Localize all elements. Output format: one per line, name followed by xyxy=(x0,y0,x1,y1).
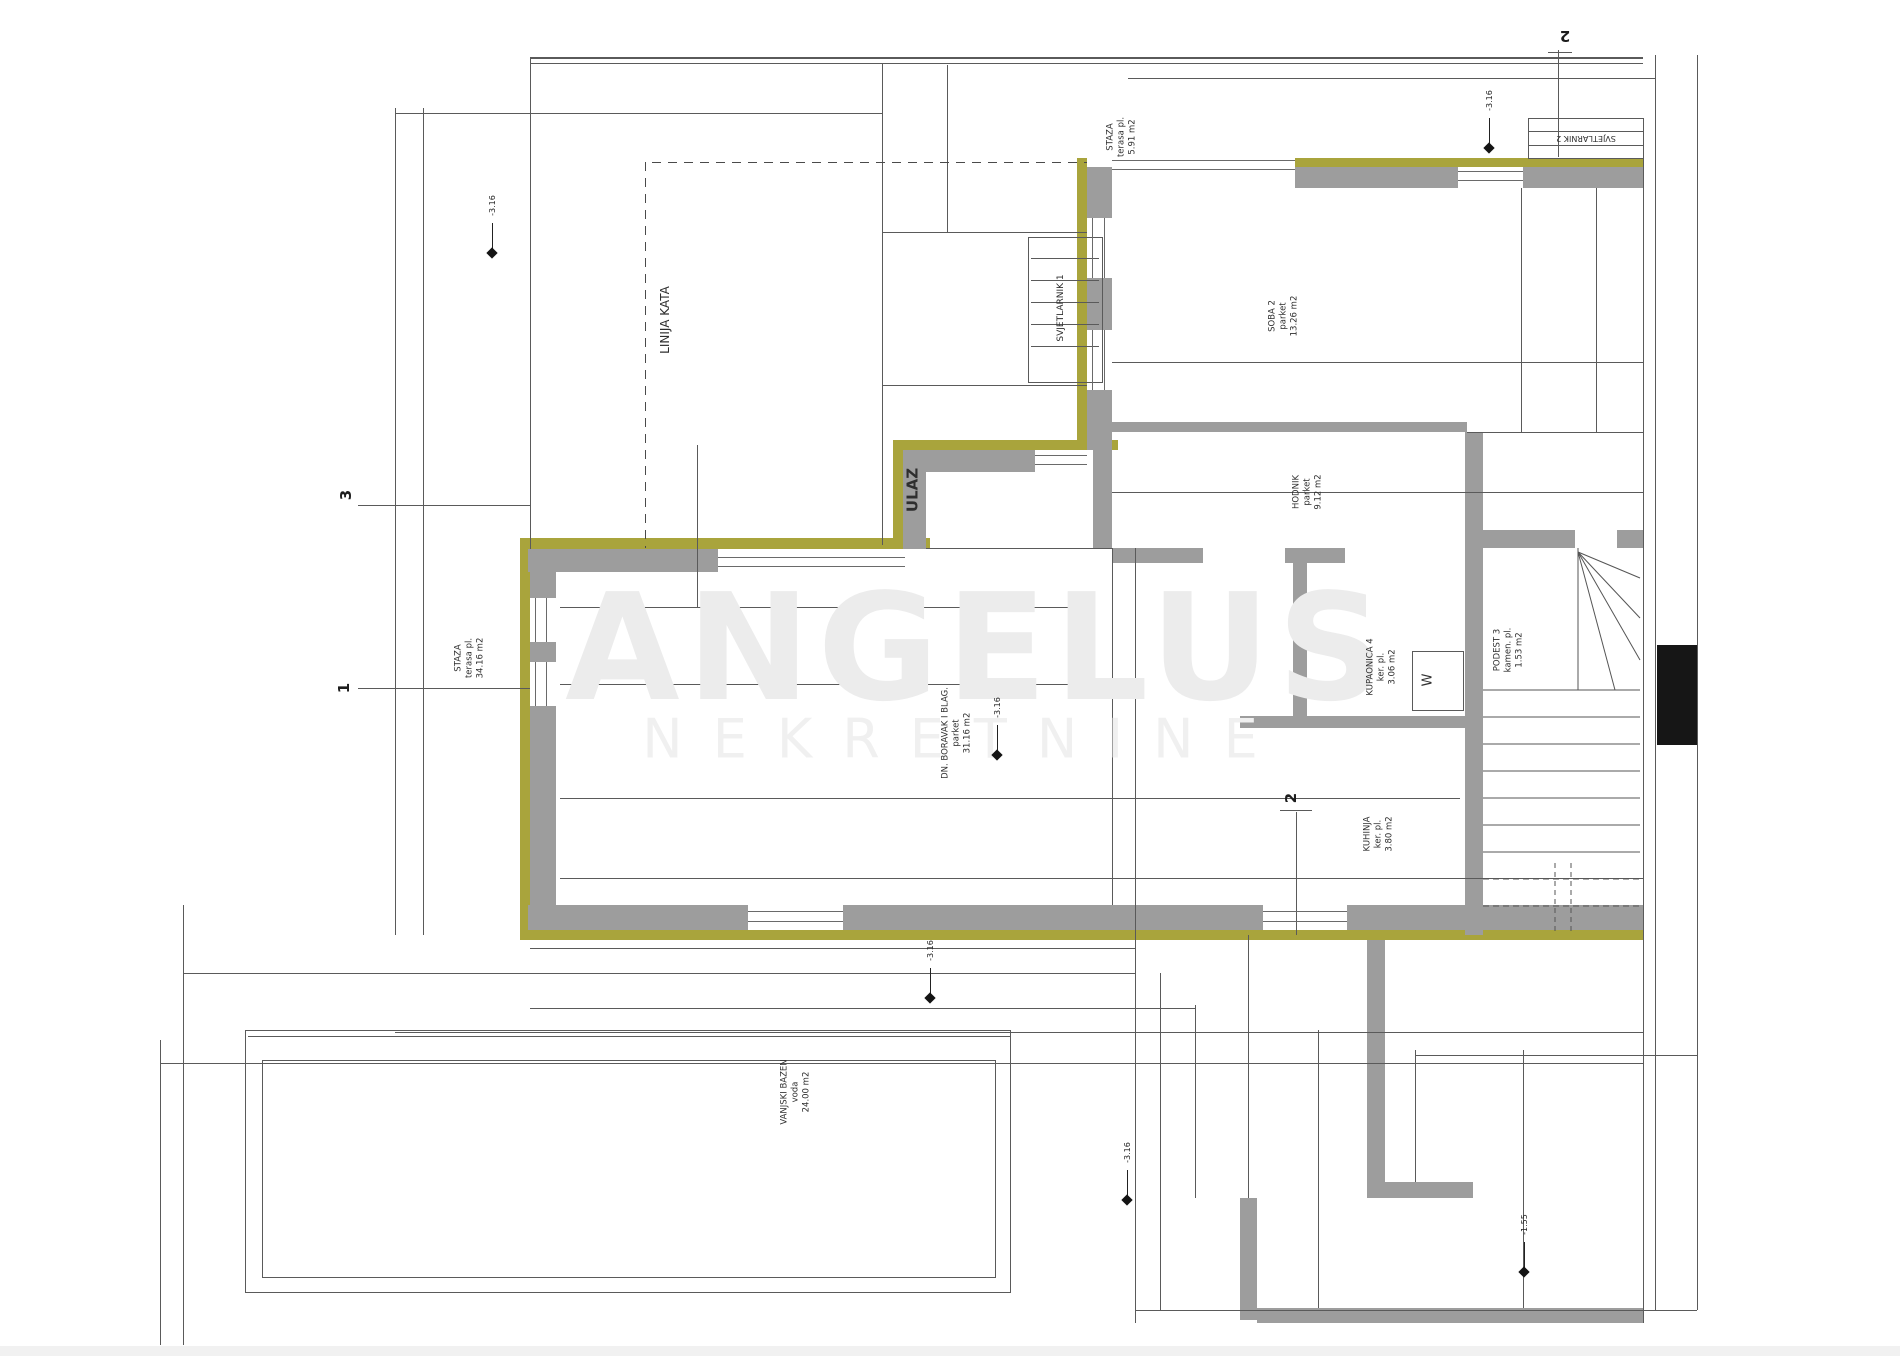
room-name: HODNIK xyxy=(1291,474,1302,509)
elevation-value: -3.16 xyxy=(1123,1142,1132,1163)
line xyxy=(1112,362,1643,363)
floor-outline-dashed xyxy=(652,162,1087,163)
elevation-value: -1.55 xyxy=(1520,1214,1529,1235)
room-finish: ker. pl. xyxy=(1373,816,1384,851)
line xyxy=(1643,157,1644,1323)
line xyxy=(947,65,948,232)
page-edge-strip xyxy=(0,1346,1900,1356)
wall-segment xyxy=(1523,167,1643,188)
line xyxy=(1528,145,1643,146)
line xyxy=(1028,237,1029,383)
line xyxy=(1128,78,1655,79)
line xyxy=(560,878,1643,879)
line xyxy=(1318,1030,1319,1308)
elevation-value: -3.16 xyxy=(1485,90,1494,111)
marker-diamond-icon xyxy=(1483,142,1494,153)
room-finish: parket xyxy=(1302,474,1313,509)
room-name: SVJETLARNIK 1 xyxy=(1056,274,1068,341)
section-number: 2 xyxy=(1282,793,1300,803)
room-label: HODNIK parket 9.12 m2 xyxy=(1291,474,1324,509)
line xyxy=(882,63,883,545)
room-area: 24.00 m2 xyxy=(802,1059,813,1124)
room-finish: parket xyxy=(1278,296,1289,337)
line xyxy=(1031,346,1099,347)
window-line xyxy=(1092,218,1093,278)
washer-label: W xyxy=(1421,674,1436,687)
window-line xyxy=(1104,330,1105,390)
window-line xyxy=(748,911,843,912)
line xyxy=(530,948,1135,949)
line xyxy=(423,108,424,935)
line xyxy=(358,688,530,689)
line xyxy=(245,1292,1011,1293)
wall-segment xyxy=(1295,167,1458,188)
line xyxy=(1195,1005,1196,1198)
room-area: 1.53 m2 xyxy=(1515,628,1526,673)
line xyxy=(560,798,1460,799)
marker-diamond-icon xyxy=(486,247,497,258)
section-number: 1 xyxy=(335,683,353,693)
room-label: SVJETLARNIK 2 xyxy=(1556,133,1616,143)
window-line xyxy=(748,921,843,922)
room-label: LINIJA KATA xyxy=(658,286,674,354)
line xyxy=(530,1008,1195,1009)
line xyxy=(183,905,184,1345)
line xyxy=(1528,118,1643,119)
room-name: LINIJA KATA xyxy=(658,286,674,354)
room-label: KUHINJA ker. pl. 3.80 m2 xyxy=(1362,816,1395,851)
insulation-strip xyxy=(1295,158,1643,167)
line xyxy=(1412,651,1413,711)
room-area: 3.06 m2 xyxy=(1388,638,1399,695)
room-name: DN. BORAVAK I BLAG. xyxy=(940,687,951,779)
room-name: VANJSKI BAZEN xyxy=(779,1059,790,1124)
room-finish: terasa pl. xyxy=(464,638,475,679)
room-label: VANJSKI BAZEN voda 24.00 m2 xyxy=(779,1059,812,1124)
window-line xyxy=(546,662,547,706)
room-name: ULAZ xyxy=(903,468,923,512)
line xyxy=(1296,812,1297,935)
window-line xyxy=(1035,455,1087,456)
wall-segment xyxy=(1093,450,1112,548)
window-line xyxy=(1458,180,1523,181)
line xyxy=(1643,118,1644,159)
wall-segment xyxy=(843,905,1263,930)
room-finish: terasa pl. xyxy=(1116,117,1127,157)
window-line xyxy=(1263,921,1347,922)
line xyxy=(1280,810,1312,811)
line xyxy=(1112,492,1643,493)
window-line xyxy=(1104,218,1105,278)
room-area: 31.16 m2 xyxy=(963,687,974,779)
line xyxy=(358,505,530,506)
line xyxy=(395,1032,1643,1033)
line xyxy=(1135,1310,1697,1311)
line xyxy=(1463,651,1464,711)
line xyxy=(530,57,1643,59)
line xyxy=(1655,55,1656,1310)
line xyxy=(1028,382,1102,383)
window-line xyxy=(1458,171,1523,172)
section-marker: 2 xyxy=(1560,27,1570,45)
window-line xyxy=(718,557,905,558)
line xyxy=(1010,1030,1011,1293)
wall-segment xyxy=(1465,432,1483,935)
room-finish: kamen. pl. xyxy=(1503,628,1514,673)
line xyxy=(183,973,1135,974)
wall-segment xyxy=(528,905,748,930)
elevation-value: -3.16 xyxy=(926,940,935,961)
line xyxy=(262,1060,263,1278)
insulation-strip xyxy=(520,538,930,549)
window-line xyxy=(1035,464,1087,465)
line xyxy=(1031,258,1099,259)
line xyxy=(926,548,1112,549)
line xyxy=(1548,52,1572,53)
window-line xyxy=(535,598,536,642)
line xyxy=(248,1036,1010,1037)
wall-segment xyxy=(1087,278,1112,330)
wall-segment xyxy=(1367,940,1385,1198)
line xyxy=(1028,237,1102,238)
line xyxy=(1415,1055,1697,1056)
section-marker: 3 xyxy=(337,490,355,500)
wall-segment xyxy=(1112,422,1467,432)
line xyxy=(1135,935,1136,1323)
line xyxy=(1521,188,1522,432)
line xyxy=(1102,237,1103,383)
wall-segment xyxy=(1617,530,1643,548)
elevation-value: -3.16 xyxy=(488,195,497,216)
room-name: KUPAONICA 4 xyxy=(1365,638,1376,695)
staircase xyxy=(1483,548,1643,935)
room-area: 3.80 m2 xyxy=(1385,816,1396,851)
room-name: STAZA xyxy=(453,638,464,679)
line xyxy=(1248,935,1249,1198)
wall-segment xyxy=(1483,530,1575,548)
elevation-value: -3.16 xyxy=(993,697,1002,718)
line xyxy=(882,232,1087,233)
line xyxy=(262,1277,996,1278)
section-marker: 2 xyxy=(1282,793,1300,803)
marker-diamond-icon xyxy=(1121,1194,1132,1205)
line xyxy=(1697,55,1698,1310)
room-area: 5.91 m2 xyxy=(1128,117,1139,157)
line xyxy=(1596,188,1597,432)
room-area: 34.16 m2 xyxy=(476,638,487,679)
window-line xyxy=(1112,169,1295,170)
wall-segment xyxy=(1385,1182,1473,1198)
wall-segment xyxy=(1240,1198,1257,1320)
line xyxy=(395,108,396,935)
room-name: SOBA 2 xyxy=(1267,296,1278,337)
line xyxy=(530,59,531,549)
line xyxy=(245,1030,246,1293)
line xyxy=(1412,710,1463,711)
room-finish: ker. pl. xyxy=(1376,638,1387,695)
shaft-fill xyxy=(1657,645,1697,745)
floor-plan: ANGELUS NEKRETNINE W LINIJA KA xyxy=(0,0,1900,1356)
room-label: ULAZ xyxy=(903,468,923,512)
room-label: KUPAONICA 4 ker. pl. 3.06 m2 xyxy=(1365,638,1398,695)
room-finish: parket xyxy=(951,687,962,779)
line xyxy=(262,1060,995,1061)
line xyxy=(1528,158,1643,159)
line xyxy=(1467,432,1643,433)
line xyxy=(160,1063,1643,1064)
line xyxy=(882,385,1087,386)
room-label: STAZA terasa pl. 5.91 m2 xyxy=(1105,117,1138,157)
marker-diamond-icon xyxy=(924,992,935,1003)
room-finish: voda xyxy=(790,1059,801,1124)
section-marker: 1 xyxy=(335,683,353,693)
wall-segment xyxy=(530,706,556,905)
floor-outline-dashed xyxy=(645,162,646,548)
room-name: KUHINJA xyxy=(1362,816,1373,851)
window-line xyxy=(546,598,547,642)
window-line xyxy=(1263,911,1347,912)
room-area: 9.12 m2 xyxy=(1314,474,1325,509)
line xyxy=(160,1040,161,1345)
marker-diamond-icon xyxy=(1518,1266,1529,1277)
room-area: 13.26 m2 xyxy=(1290,296,1301,337)
room-label: PODEST 3 kamen. pl. 1.53 m2 xyxy=(1492,628,1525,673)
room-label: SOBA 2 parket 13.26 m2 xyxy=(1267,296,1300,337)
room-name: STAZA xyxy=(1105,117,1116,157)
room-label: SVJETLARNIK 1 xyxy=(1056,274,1068,341)
wall-segment xyxy=(530,572,556,598)
section-number: 2 xyxy=(1560,27,1570,45)
line xyxy=(530,63,1643,64)
window-line xyxy=(535,662,536,706)
room-label: DN. BORAVAK I BLAG. parket 31.16 m2 xyxy=(940,687,973,779)
insulation-strip xyxy=(893,450,903,538)
wall-segment xyxy=(1285,548,1345,563)
room-name: PODEST 3 xyxy=(1492,628,1503,673)
room-label: STAZA terasa pl. 34.16 m2 xyxy=(453,638,486,679)
room-name: SVJETLARNIK 2 xyxy=(1556,133,1616,143)
wall-segment xyxy=(1112,548,1203,563)
line xyxy=(995,1060,996,1278)
wall-segment xyxy=(903,450,1035,472)
line xyxy=(1528,118,1529,159)
wall-segment xyxy=(530,642,556,662)
line xyxy=(1412,651,1463,652)
wall-segment xyxy=(1087,390,1112,450)
wall-segment xyxy=(1087,167,1112,218)
line xyxy=(245,1030,1010,1031)
window-line xyxy=(1112,160,1295,161)
line xyxy=(1160,973,1161,1310)
line xyxy=(1415,1050,1416,1182)
line xyxy=(395,113,882,114)
window-line xyxy=(1092,330,1093,390)
insulation-strip xyxy=(520,549,530,940)
section-number: 3 xyxy=(337,490,355,500)
